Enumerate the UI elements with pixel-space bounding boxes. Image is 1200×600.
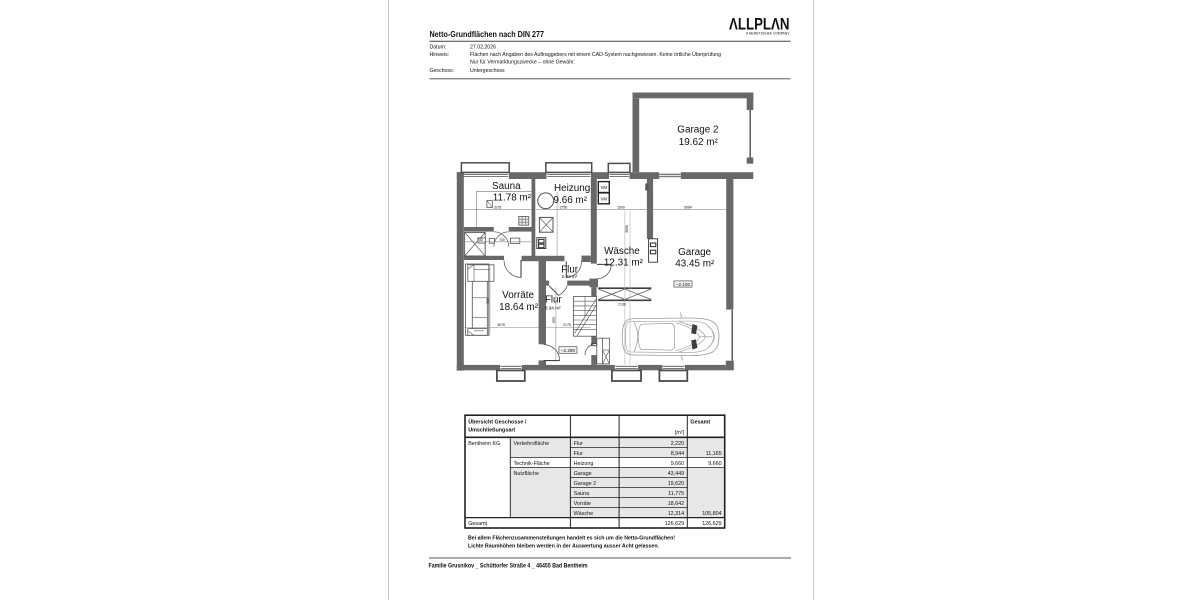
svg-text:Gesamt: Gesamt	[690, 419, 710, 425]
svg-text:Technik-Fläche: Technik-Fläche	[514, 461, 550, 467]
svg-text:Verkehrsfläche: Verkehrsfläche	[514, 441, 550, 447]
svg-text:Sauna: Sauna	[574, 491, 590, 497]
svg-text:105,804: 105,804	[702, 511, 722, 517]
svg-text:700: 700	[499, 238, 505, 242]
svg-text:12,314: 12,314	[668, 511, 685, 517]
svg-text:9,660: 9,660	[708, 461, 722, 467]
svg-text:11.78 m²: 11.78 m²	[493, 192, 532, 203]
svg-text:Hinweis:: Hinweis:	[430, 52, 450, 58]
svg-text:Geschoss:: Geschoss:	[430, 68, 455, 74]
svg-text:2.22 m²: 2.22 m²	[562, 274, 578, 279]
svg-text:18,642: 18,642	[668, 501, 685, 507]
svg-text:556: 556	[486, 298, 490, 304]
svg-text:126,629: 126,629	[665, 521, 685, 527]
svg-text:3696: 3696	[625, 225, 629, 233]
svg-text:Bei allem Flächenzusammenstell: Bei allem Flächenzusammenstellungen hand…	[468, 535, 675, 541]
svg-text:–2.290: –2.290	[561, 348, 575, 353]
svg-text:3278: 3278	[494, 206, 502, 210]
svg-text:Datum:: Datum:	[430, 45, 447, 51]
svg-text:18.64 m²: 18.64 m²	[499, 302, 539, 313]
svg-text:12.31 m²: 12.31 m²	[604, 258, 644, 269]
svg-text:11,165: 11,165	[706, 451, 722, 457]
svg-text:Vorräte: Vorräte	[502, 290, 534, 301]
svg-text:VM: VM	[601, 185, 608, 190]
svg-text:27.02.2026: 27.02.2026	[470, 45, 496, 51]
svg-text:Flur: Flur	[545, 295, 562, 306]
svg-text:Übersicht Geschosse /: Übersicht Geschosse /	[468, 418, 527, 425]
svg-text:–2.100: –2.100	[676, 282, 690, 287]
svg-text:Sauna: Sauna	[492, 181, 521, 192]
svg-text:126,629: 126,629	[702, 521, 722, 527]
svg-text:Familie Grusnikov _ Schüttorfe: Familie Grusnikov _ Schüttorfer Straße 4…	[429, 564, 588, 570]
svg-text:Garage: Garage	[678, 247, 711, 258]
svg-text:Garage: Garage	[574, 471, 592, 477]
svg-text:8,944: 8,944	[671, 451, 685, 457]
svg-text:[m²]: [m²]	[675, 430, 685, 436]
svg-text:43,449: 43,449	[668, 471, 685, 477]
svg-text:2178: 2178	[563, 323, 571, 327]
svg-text:5984: 5984	[684, 206, 692, 210]
svg-text:Heizung: Heizung	[574, 461, 594, 467]
svg-text:VM: VM	[601, 196, 608, 201]
svg-text:A NEMETSCHEK COMPANY: A NEMETSCHEK COMPANY	[746, 31, 790, 35]
svg-text:1500: 1500	[617, 206, 625, 210]
svg-text:2,220: 2,220	[671, 441, 685, 447]
svg-text:Vorräte: Vorräte	[574, 501, 591, 507]
svg-text:Flächen nach Angaben des Auftr: Flächen nach Angaben des Auftraggebers m…	[470, 51, 721, 58]
svg-text:Untergeschoss: Untergeschoss	[470, 68, 505, 74]
svg-text:Umschließungsart: Umschließungsart	[468, 428, 515, 434]
svg-text:Nutzfläche: Nutzfläche	[514, 471, 539, 477]
svg-text:11,775: 11,775	[668, 491, 684, 497]
svg-text:Wäsche: Wäsche	[604, 246, 640, 257]
svg-text:Gesamt: Gesamt	[468, 521, 487, 527]
svg-text:19.62 m²: 19.62 m²	[679, 137, 719, 148]
svg-text:Wäsche: Wäsche	[574, 511, 593, 517]
svg-text:899: 899	[552, 317, 556, 323]
svg-text:9.66 m²: 9.66 m²	[554, 195, 588, 206]
svg-text:8.94 m²: 8.94 m²	[545, 305, 561, 310]
svg-text:750: 750	[477, 238, 483, 242]
svg-text:Heizung: Heizung	[554, 183, 590, 194]
svg-text:Garage 2: Garage 2	[574, 481, 596, 487]
svg-text:Lichte Raumhöhen bleiben werde: Lichte Raumhöhen bleiben werden in der A…	[468, 543, 659, 549]
svg-text:9,660: 9,660	[671, 461, 685, 467]
svg-text:Garage 2: Garage 2	[677, 124, 718, 135]
svg-text:Bentheim KG: Bentheim KG	[468, 441, 500, 447]
svg-text:2160: 2160	[618, 303, 626, 307]
svg-text:Netto-Grundflächen nach DIN 27: Netto-Grundflächen nach DIN 277	[430, 30, 545, 39]
svg-text:43.45 m²: 43.45 m²	[675, 258, 715, 269]
svg-text:Flur: Flur	[574, 441, 583, 447]
svg-text:Flur: Flur	[574, 451, 583, 457]
svg-text:3678: 3678	[497, 323, 505, 327]
svg-text:19,620: 19,620	[668, 481, 685, 487]
svg-text:Nur für Vermarktungszwecke – o: Nur für Vermarktungszwecke – ohne Gewähr…	[470, 60, 575, 66]
